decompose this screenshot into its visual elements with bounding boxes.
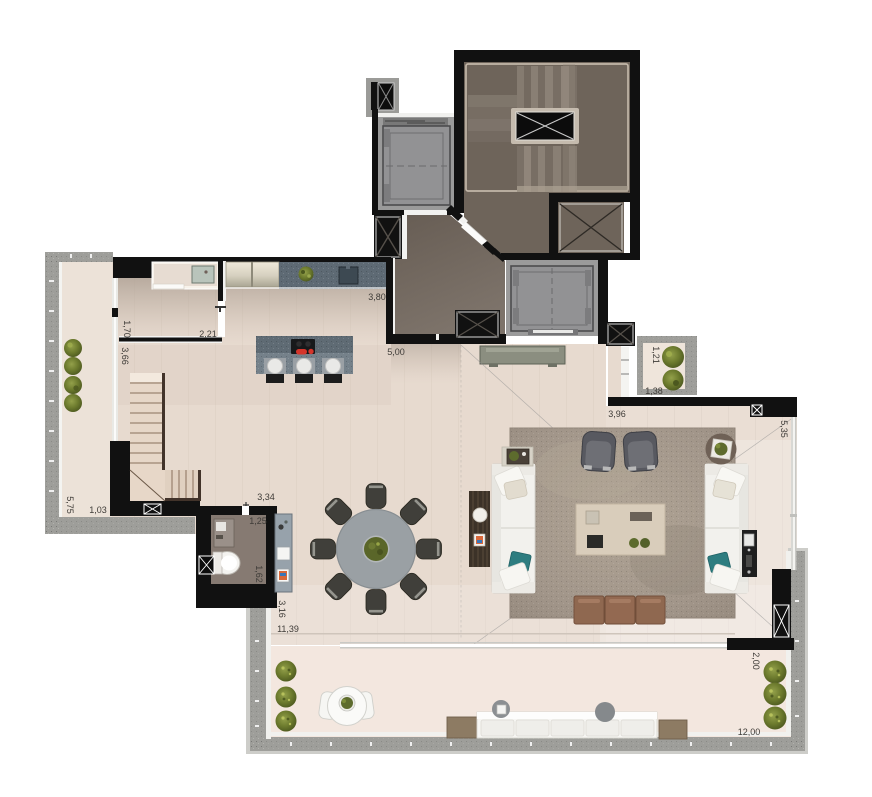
- svg-text:3,66: 3,66: [120, 347, 130, 365]
- svg-text:3,16: 3,16: [277, 600, 287, 618]
- svg-text:11,39: 11,39: [277, 624, 299, 634]
- svg-text:3,34: 3,34: [257, 492, 275, 502]
- svg-text:2,21: 2,21: [199, 329, 217, 339]
- svg-text:1,62: 1,62: [254, 565, 264, 583]
- svg-text:5,35: 5,35: [779, 420, 789, 438]
- svg-text:3,80: 3,80: [368, 292, 386, 302]
- svg-text:12,00: 12,00: [738, 727, 761, 737]
- svg-text:1,25: 1,25: [249, 516, 267, 526]
- svg-text:1,70: 1,70: [122, 320, 132, 338]
- svg-text:5,75: 5,75: [65, 496, 75, 514]
- svg-text:2,00: 2,00: [751, 652, 761, 670]
- svg-text:3,96: 3,96: [608, 409, 626, 419]
- svg-text:1,21: 1,21: [651, 346, 661, 364]
- svg-text:1,03: 1,03: [89, 505, 107, 515]
- svg-text:5,00: 5,00: [387, 347, 405, 357]
- svg-text:1,38: 1,38: [645, 386, 663, 396]
